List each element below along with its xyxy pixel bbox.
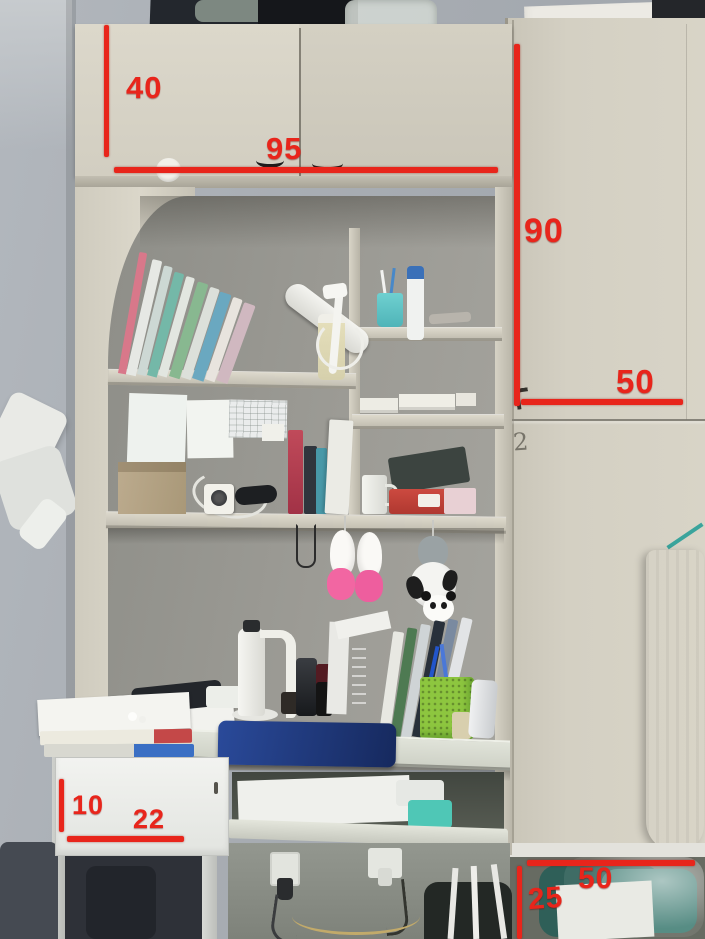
dimension-label-wardrobe-width: 50 [616,365,655,398]
grey-bags-left [0,842,58,939]
hanging-cord-loop [296,524,316,568]
earbud-dot [128,712,137,721]
small-box [456,393,476,406]
shelf-top-right [352,327,502,341]
small-note [262,424,284,441]
pink-box [444,488,476,514]
red-folder [288,430,303,514]
dimension-line-drawer-depth [67,836,184,842]
dimension-label-cabinet-height: 40 [126,72,162,103]
white-folder [325,419,354,514]
lamp-cable-loop [316,320,364,370]
panda-ear-icon [421,591,431,601]
white-mug [362,475,387,514]
chalk-box [360,398,398,413]
dimension-line-wardrobe-height [514,44,520,406]
towel [646,550,704,852]
wardrobe-horizontal-seam [509,419,705,421]
cardboard-box [118,462,186,514]
cat-slipper-left-sole [327,568,355,600]
cabinet-door-right-shade [299,24,512,176]
dimension-label-drawer-depth: 22 [133,806,165,833]
wardrobe-door-pencil-number: 2 [512,428,529,457]
toothbrush-cup [377,293,403,327]
papers-in-tray [237,775,411,827]
dimension-label-drawer-height: 10 [72,792,104,819]
wall-left-light-patch [0,0,72,150]
thermos-cap [243,620,260,632]
schedule-sheet [186,400,233,459]
red-book [344,638,374,716]
dimension-label-cabinet-width: 95 [266,133,302,164]
dimension-label-bottom-height: 25 [527,883,564,915]
book-white-red [40,729,192,746]
cat-slipper-right-sole [355,570,383,602]
panda-ear-icon [446,591,456,601]
black-bottle [296,658,317,716]
panda-eye-icon [430,602,436,609]
speaker-cone-icon [211,490,227,506]
toiletry-bottle [407,266,424,340]
dimension-label-wardrobe-height: 90 [524,214,564,248]
dark-bag-under-desk [86,866,156,939]
schedule-sheet [127,393,187,467]
hutch-under-cabinet-shadow [140,196,504,248]
dimension-label-bottom-width: 50 [578,864,613,894]
annotated-dorm-desk-photo: 2 [0,0,705,939]
dimension-line-bottom-height [517,866,522,939]
chalk-box [399,394,455,410]
dimension-line-cabinet-width [114,167,498,173]
tin-label [418,494,440,507]
teal-box-in-tray [408,800,452,828]
yellow-cable-on-floor [292,898,420,935]
dimension-line-wardrobe-width [521,399,683,405]
panda-eye-icon [441,602,447,609]
silver-roll [468,679,498,739]
dimension-line-cabinet-height [104,25,109,157]
wardrobe-right-seam [686,24,687,420]
dimension-line-drawer-height [59,779,64,832]
shelf-mid-right [352,414,504,429]
book-blue-spine [44,744,194,757]
drawer-keyhole-icon [214,782,218,794]
laptop-closed [218,720,397,767]
